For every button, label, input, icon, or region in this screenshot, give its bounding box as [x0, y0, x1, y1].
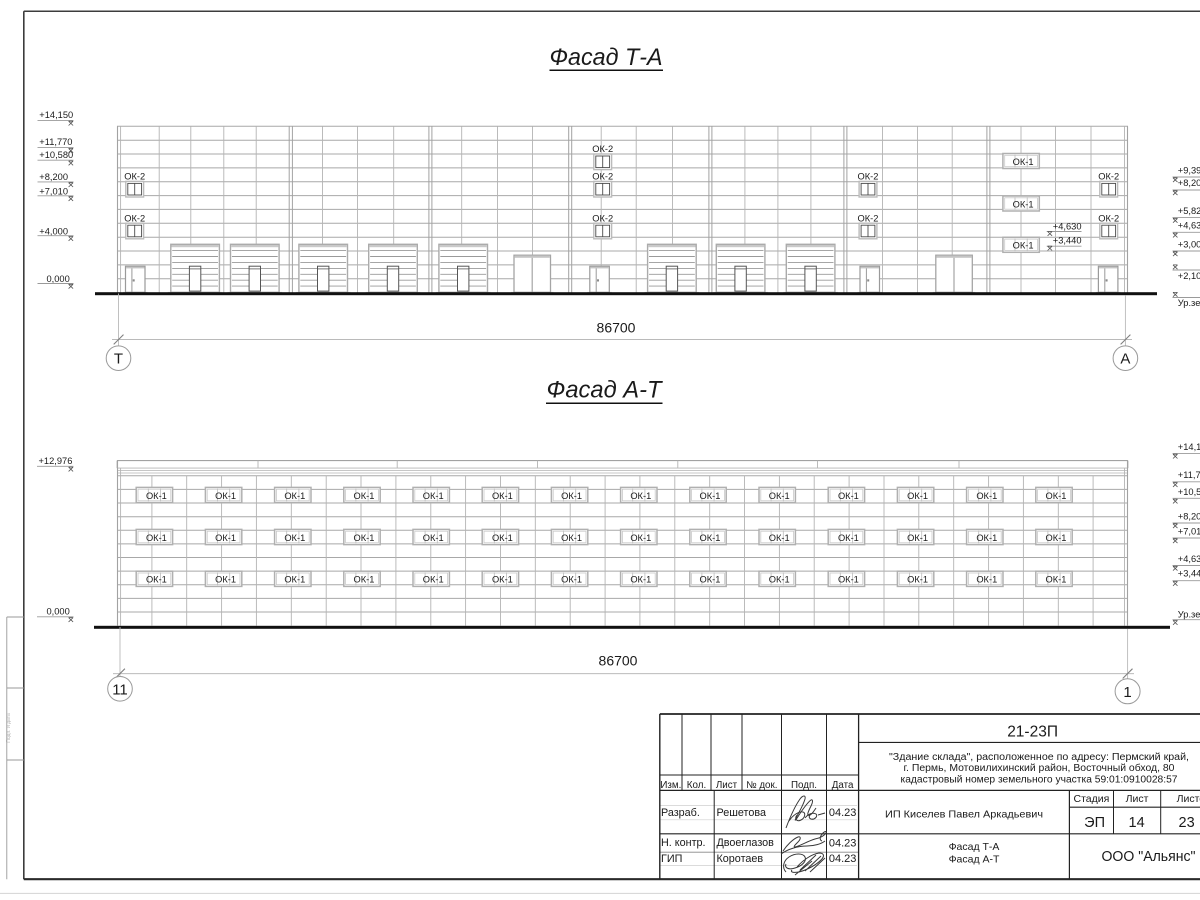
svg-text:Лист: Лист [716, 780, 738, 791]
svg-text:+7,010: +7,010 [39, 186, 68, 196]
svg-text:ОК-1: ОК-1 [354, 491, 375, 501]
svg-text:ОК-1: ОК-1 [838, 491, 859, 501]
svg-text:ОК-2: ОК-2 [1098, 213, 1119, 223]
svg-text:Решетова: Решетова [717, 807, 767, 819]
svg-text:ОК-1: ОК-1 [215, 575, 236, 585]
svg-text:+8,200: +8,200 [1178, 511, 1200, 521]
svg-text:+4,630: +4,630 [1053, 221, 1082, 231]
svg-text:Дата: Дата [832, 780, 854, 791]
svg-text:+8,200: +8,200 [39, 172, 68, 182]
svg-text:Фасад Т-А: Фасад Т-А [949, 841, 1000, 853]
svg-text:А: А [1120, 351, 1130, 368]
svg-text:ОК-1: ОК-1 [838, 575, 859, 585]
svg-text:ОК-1: ОК-1 [907, 575, 928, 585]
svg-text:ОК-1: ОК-1 [976, 533, 997, 543]
svg-text:ОК-1: ОК-1 [630, 533, 651, 543]
svg-text:ОК-1: ОК-1 [700, 575, 721, 585]
svg-text:+11,770: +11,770 [39, 137, 72, 147]
svg-text:+12,976: +12,976 [39, 456, 73, 466]
svg-text:ОК-2: ОК-2 [592, 144, 613, 154]
svg-text:ГИП: ГИП [661, 853, 682, 865]
svg-text:кадастровый номер земельного у: кадастровый номер земельного участка 59:… [901, 775, 1178, 786]
svg-text:ОК-1: ОК-1 [492, 575, 513, 585]
svg-text:ОК-2: ОК-2 [592, 213, 613, 223]
svg-text:ОК-1: ОК-1 [630, 491, 651, 501]
svg-text:Фасад А-Т: Фасад А-Т [949, 854, 1000, 866]
svg-text:0,000: 0,000 [47, 607, 70, 617]
svg-text:ОК-1: ОК-1 [907, 491, 928, 501]
svg-text:0,000: 0,000 [47, 274, 70, 284]
svg-text:ОК-1: ОК-1 [1046, 491, 1067, 501]
svg-text:86700: 86700 [599, 653, 638, 669]
svg-text:ОК-1: ОК-1 [215, 533, 236, 543]
svg-text:ООО "Альянс": ООО "Альянс" [1102, 848, 1196, 865]
svg-text:ОК-1: ОК-1 [284, 533, 305, 543]
svg-text:+7,010: +7,010 [1178, 527, 1200, 537]
svg-text:+14,150: +14,150 [39, 110, 73, 120]
svg-text:ОК-1: ОК-1 [146, 533, 167, 543]
svg-text:г. Пермь, Мотовилихинский райо: г. Пермь, Мотовилихинский район, Восточн… [904, 762, 1175, 774]
svg-text:+14,150: +14,150 [1178, 442, 1200, 452]
svg-text:ОК-1: ОК-1 [1046, 533, 1067, 543]
svg-text:+4,630: +4,630 [1178, 220, 1200, 230]
svg-text:Подп.: Подп. [791, 780, 817, 791]
svg-text:Листов: Листов [1177, 793, 1200, 805]
svg-text:+11,770: +11,770 [1178, 470, 1200, 480]
svg-text:14: 14 [1129, 815, 1145, 831]
svg-text:ОК-1: ОК-1 [423, 575, 444, 585]
svg-text:ОК-2: ОК-2 [1098, 172, 1119, 182]
svg-text:1: 1 [1123, 684, 1131, 701]
svg-text:ЭП: ЭП [1084, 815, 1105, 831]
svg-text:ОК-2: ОК-2 [858, 172, 879, 182]
svg-text:ОК-1: ОК-1 [215, 491, 236, 501]
svg-text:ОК-1: ОК-1 [700, 533, 721, 543]
svg-text:+8,200: +8,200 [1178, 178, 1200, 188]
svg-text:+2,100: +2,100 [1178, 271, 1200, 281]
svg-text:"Здание склада", расположенное: "Здание склада", расположенное по адресу… [889, 752, 1189, 763]
svg-text:04.23: 04.23 [829, 853, 857, 865]
svg-text:ОК-2: ОК-2 [858, 213, 879, 223]
svg-text:+4,000: +4,000 [39, 226, 68, 236]
svg-text:Кол.: Кол. [687, 780, 706, 791]
svg-text:ОК-1: ОК-1 [976, 491, 997, 501]
svg-text:ОК-2: ОК-2 [124, 172, 145, 182]
svg-text:ОК-1: ОК-1 [907, 533, 928, 543]
svg-text:04.23: 04.23 [829, 807, 857, 819]
svg-text:+3,440: +3,440 [1053, 236, 1082, 246]
svg-text:ОК-1: ОК-1 [1013, 199, 1034, 209]
svg-text:ОК-1: ОК-1 [1013, 157, 1034, 167]
svg-text:Фасад Т-А: Фасад Т-А [550, 44, 663, 71]
svg-text:ОК-1: ОК-1 [354, 533, 375, 543]
svg-text:+9,390: +9,390 [1178, 165, 1200, 175]
svg-text:ОК-2: ОК-2 [124, 213, 145, 223]
svg-text:ОК-2: ОК-2 [592, 172, 613, 182]
svg-text:ОК-1: ОК-1 [769, 491, 790, 501]
svg-text:Лист: Лист [1126, 793, 1149, 805]
svg-text:+3,440: +3,440 [1178, 569, 1200, 579]
svg-text:ОК-1: ОК-1 [838, 533, 859, 543]
svg-text:ОК-1: ОК-1 [146, 575, 167, 585]
svg-text:№ док.: № док. [746, 780, 777, 791]
svg-text:ИП Киселев Павел Аркадьевич: ИП Киселев Павел Аркадьевич [885, 809, 1043, 821]
svg-text:ОК-1: ОК-1 [561, 533, 582, 543]
svg-text:+4,630: +4,630 [1178, 554, 1200, 564]
svg-text:Ур.земли: Ур.земли [1178, 609, 1200, 619]
svg-text:Двоеглазов: Двоеглазов [717, 837, 775, 849]
svg-text:ОК-1: ОК-1 [1046, 575, 1067, 585]
svg-text:ОК-1: ОК-1 [492, 533, 513, 543]
svg-text:ОК-1: ОК-1 [561, 491, 582, 501]
svg-text:Подп. и дата: Подп. и дата [6, 713, 12, 743]
svg-text:ОК-1: ОК-1 [423, 533, 444, 543]
svg-text:+10,580: +10,580 [1178, 487, 1200, 497]
svg-text:ОК-1: ОК-1 [561, 575, 582, 585]
svg-text:ОК-1: ОК-1 [976, 575, 997, 585]
svg-text:ОК-1: ОК-1 [146, 491, 167, 501]
svg-text:+5,820: +5,820 [1178, 206, 1200, 216]
svg-text:Разраб.: Разраб. [661, 807, 700, 819]
svg-text:ОК-1: ОК-1 [769, 533, 790, 543]
svg-text:ОК-1: ОК-1 [284, 491, 305, 501]
svg-text:23: 23 [1179, 815, 1195, 831]
svg-text:+10,580: +10,580 [39, 150, 73, 160]
svg-text:ОК-1: ОК-1 [769, 575, 790, 585]
svg-text:Фасад А-Т: Фасад А-Т [547, 377, 664, 404]
svg-text:ОК-1: ОК-1 [492, 491, 513, 501]
svg-text:ОК-1: ОК-1 [354, 575, 375, 585]
svg-text:86700: 86700 [597, 319, 636, 335]
svg-text:Изм.: Изм. [660, 780, 681, 791]
svg-text:ОК-1: ОК-1 [423, 491, 444, 501]
svg-text:ОК-1: ОК-1 [700, 491, 721, 501]
svg-text:ОК-1: ОК-1 [630, 575, 651, 585]
svg-text:11: 11 [112, 681, 128, 698]
svg-text:Ур.земли: Ур.земли [1178, 298, 1200, 308]
svg-text:+3,000: +3,000 [1178, 240, 1200, 250]
svg-text:04.23: 04.23 [829, 837, 857, 849]
svg-text:Т: Т [114, 351, 123, 368]
svg-text:21-23П: 21-23П [1007, 724, 1058, 741]
svg-text:Стадия: Стадия [1074, 793, 1110, 805]
svg-text:Н. контр.: Н. контр. [661, 837, 706, 849]
svg-text:ОК-1: ОК-1 [1013, 241, 1034, 251]
svg-text:ОК-1: ОК-1 [284, 575, 305, 585]
svg-text:Коротаев: Коротаев [717, 853, 764, 865]
